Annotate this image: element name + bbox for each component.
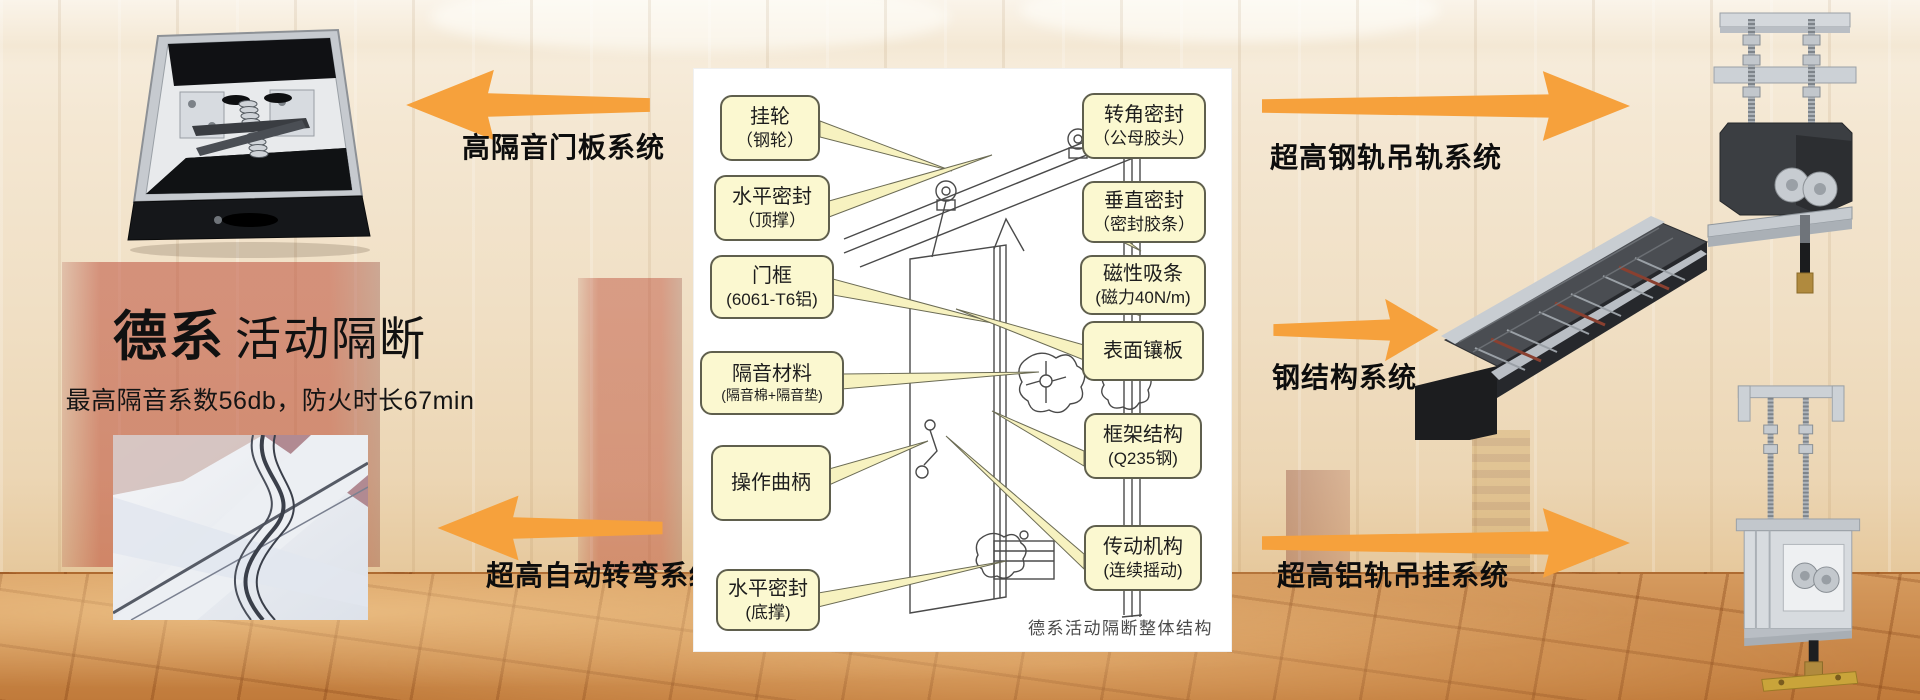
arrow-label-left-top: 高隔音门板系统 xyxy=(462,126,665,166)
callout-hanging-wheel: 挂轮 （钢轮） xyxy=(720,95,820,161)
callout-frame-structure: 框架结构 (Q235钢) xyxy=(1084,413,1202,479)
callout-text: 操作曲柄 xyxy=(731,471,811,496)
aluminum-rail-hanger-photo xyxy=(1725,382,1870,700)
callout-text: （钢轮） xyxy=(736,130,804,151)
callout-text: 挂轮 xyxy=(750,105,790,130)
callout-text: （顶撑） xyxy=(738,210,806,231)
callout-bottom-seal: 水平密封 (底撑) xyxy=(716,569,820,631)
steel-rail-trolley-photo xyxy=(1700,5,1870,295)
callout-acoustic-material: 隔音材料 (隔音棉+隔音垫) xyxy=(700,351,844,415)
callout-surface-panel: 表面镶板 xyxy=(1082,321,1204,381)
product-title: 德系活动隔断 xyxy=(30,292,510,371)
callout-magnetic-strip: 磁性吸条 (磁力40N/m) xyxy=(1080,255,1206,315)
callout-text: 门框 xyxy=(752,264,792,289)
arrow-label-right-middle: 钢结构系统 xyxy=(1272,356,1417,396)
arrow-label-left-bottom: 超高自动转弯系统 xyxy=(486,554,718,594)
callout-text: 垂直密封 xyxy=(1104,189,1184,214)
arrow-label-right-bottom: 超高铝轨吊挂系统 xyxy=(1277,554,1509,594)
callout-corner-seal: 转角密封 （公母胶头） xyxy=(1082,93,1206,159)
callout-text: (6061-T6铝) xyxy=(726,289,818,310)
infographic-slide: 德系活动隔断 最高隔音系数56db，防火时长67min 高隔音门板系统 超高自动… xyxy=(0,0,1920,700)
callout-text: 传动机构 xyxy=(1103,535,1183,560)
callout-text: 转角密封 xyxy=(1104,103,1184,128)
callout-text: (隔音棉+隔音垫) xyxy=(721,387,823,405)
callout-text: 框架结构 xyxy=(1103,423,1183,448)
callout-text: (Q235钢) xyxy=(1108,448,1178,469)
callout-text: (磁力40N/m) xyxy=(1095,287,1190,308)
callout-text: 隔音材料 xyxy=(732,362,812,387)
callout-text: 水平密封 xyxy=(728,577,808,602)
diagram-caption: 德系活动隔断整体结构 xyxy=(1028,614,1213,639)
callout-text: （密封胶条） xyxy=(1093,214,1195,235)
callout-text: (连续摇动) xyxy=(1103,560,1182,581)
callout-vertical-seal: 垂直密封 （密封胶条） xyxy=(1082,181,1206,243)
arrow-right-middle xyxy=(1272,296,1440,364)
callout-text: 磁性吸条 xyxy=(1103,262,1183,287)
arrow-right-top xyxy=(1262,66,1630,146)
callout-drive-mechanism: 传动机构 (连续摇动) xyxy=(1084,525,1202,591)
steel-frame-structure-photo xyxy=(1415,190,1715,440)
callout-text: (底撑) xyxy=(745,602,790,623)
callout-top-seal: 水平密封 （顶撑） xyxy=(714,175,830,241)
callout-text: 表面镶板 xyxy=(1103,339,1183,364)
callout-text: 水平密封 xyxy=(732,185,812,210)
product-subtitle: 最高隔音系数56db，防火时长67min xyxy=(30,381,510,417)
callout-text: （公母胶头） xyxy=(1093,128,1195,149)
title-light: 活动隔断 xyxy=(235,313,427,365)
callout-door-frame: 门框 (6061-T6铝) xyxy=(710,255,834,319)
callout-operating-crank: 操作曲柄 xyxy=(711,445,831,521)
door-panel-cross-section-photo xyxy=(100,8,380,258)
curved-track-photo xyxy=(113,435,368,620)
brand-title-block: 德系活动隔断 最高隔音系数56db，防火时长67min xyxy=(30,292,510,417)
arrow-label-right-top: 超高钢轨吊轨系统 xyxy=(1270,136,1502,176)
title-bold: 德系 xyxy=(113,307,225,367)
structure-diagram-panel: 挂轮 （钢轮） 水平密封 （顶撑） 门框 (6061-T6铝) 隔音材料 (隔音… xyxy=(693,68,1232,652)
